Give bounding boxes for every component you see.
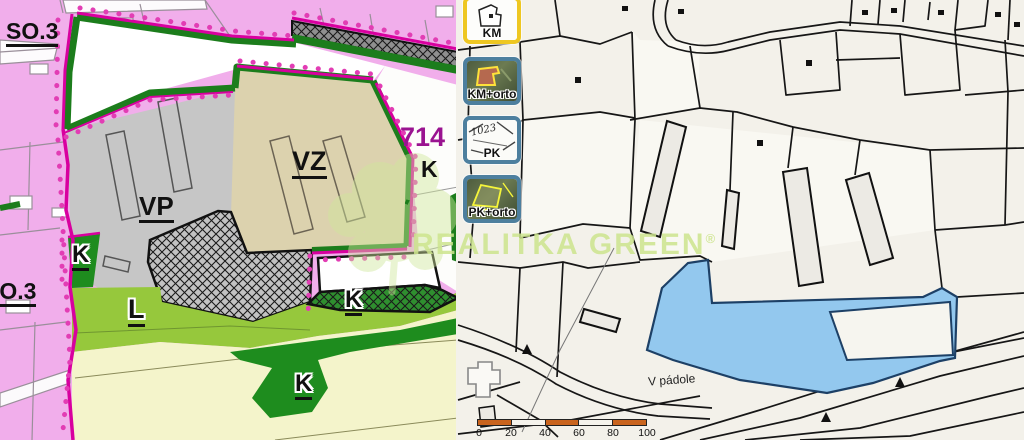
map-scale-bar: 0 20 40 60 80 100 m bbox=[477, 419, 649, 439]
map-type-button-pk-orto[interactable]: PK+orto bbox=[463, 175, 521, 223]
parcel-number-714: 714 bbox=[400, 124, 445, 151]
map-type-button-pk[interactable]: 1023 PK bbox=[463, 116, 521, 164]
zone-label-vp: VP bbox=[139, 193, 174, 223]
zone-label-k-band: K bbox=[295, 372, 312, 400]
zone-label-k-right: K bbox=[421, 158, 438, 181]
map-type-label: PK+orto bbox=[467, 205, 517, 219]
map-type-button-km[interactable]: KM bbox=[463, 0, 521, 44]
scale-tick: 20 bbox=[505, 427, 517, 439]
scale-end-label: 100 m bbox=[638, 427, 656, 440]
map-type-label: KM bbox=[467, 26, 517, 40]
scale-bar-ticks: 0 20 40 60 80 100 m bbox=[477, 426, 649, 438]
pond-inner-parcel bbox=[830, 302, 953, 360]
zoning-map-canvas[interactable] bbox=[0, 0, 458, 440]
scale-tick: 0 bbox=[476, 427, 482, 439]
map-type-button-km-orto[interactable]: KM+orto bbox=[463, 57, 521, 105]
zone-label-k-small: K bbox=[72, 243, 89, 271]
cadastral-map-canvas[interactable] bbox=[456, 0, 1024, 440]
watermark-text: REALITKA GREEN® bbox=[412, 228, 717, 262]
zone-label-vz: VZ bbox=[292, 148, 327, 179]
scale-tick: 40 bbox=[539, 427, 551, 439]
map-type-label: KM+orto bbox=[467, 87, 517, 101]
scale-tick: 60 bbox=[573, 427, 585, 439]
zone-label-so3: SO.3 bbox=[6, 20, 58, 47]
map-type-label: PK bbox=[467, 146, 517, 160]
zone-label-so3-bottom: SO.3 bbox=[0, 280, 36, 307]
zone-label-l: L bbox=[128, 296, 145, 327]
scale-bar-segments bbox=[477, 419, 647, 426]
scale-tick: 80 bbox=[607, 427, 619, 439]
registered-mark: ® bbox=[706, 231, 718, 246]
zone-label-k-hatch: K bbox=[345, 288, 362, 316]
map-viewer: REALITKA GREEN® KM KM+orto 1023 bbox=[0, 0, 1024, 440]
